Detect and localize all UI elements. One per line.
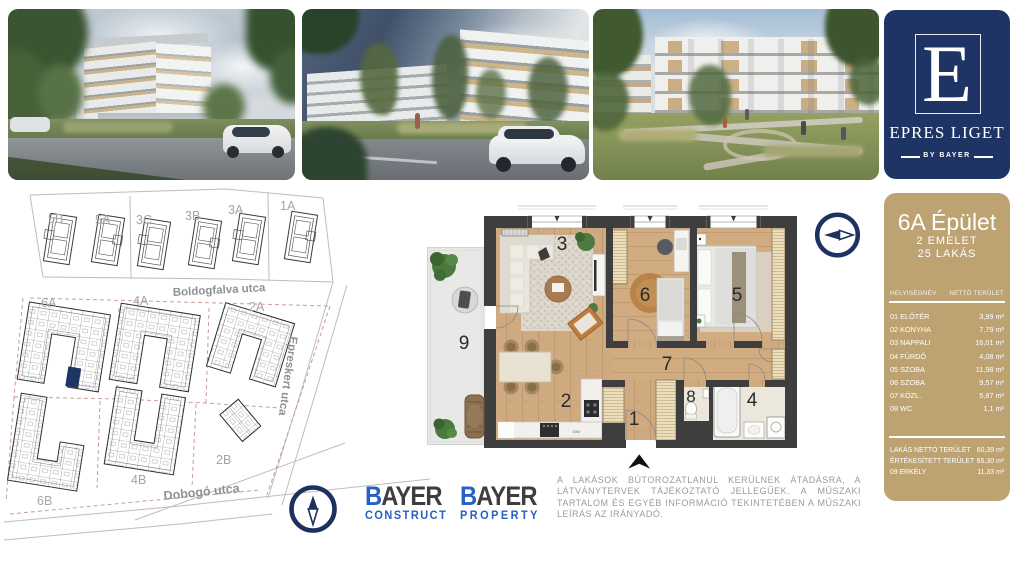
svg-text:3A: 3A xyxy=(228,203,244,217)
svg-text:2: 2 xyxy=(561,391,572,412)
svg-text:3C: 3C xyxy=(136,213,152,227)
svg-text:6A: 6A xyxy=(41,296,57,310)
svg-text:8: 8 xyxy=(686,387,695,406)
svg-text:Boldogfalva utca: Boldogfalva utca xyxy=(173,282,267,299)
svg-text:7: 7 xyxy=(662,354,673,375)
svg-text:3: 3 xyxy=(557,234,568,255)
svg-text:4A: 4A xyxy=(133,294,149,308)
svg-text:6B: 6B xyxy=(37,494,52,508)
svg-text:3B: 3B xyxy=(185,209,200,223)
svg-text:1: 1 xyxy=(629,409,640,430)
svg-text:DW: DW xyxy=(573,429,580,434)
svg-text:9: 9 xyxy=(459,333,470,354)
svg-text:5: 5 xyxy=(732,285,743,306)
svg-text:6: 6 xyxy=(640,285,651,306)
svg-text:1A: 1A xyxy=(280,199,296,213)
svg-text:2B: 2B xyxy=(216,453,231,467)
svg-text:4: 4 xyxy=(747,390,758,411)
svg-text:2A: 2A xyxy=(249,300,265,314)
svg-text:5B: 5B xyxy=(48,212,63,226)
svg-text:Dobogó utca: Dobogó utca xyxy=(163,481,241,503)
svg-text:5A: 5A xyxy=(95,213,111,227)
svg-text:4B: 4B xyxy=(131,473,146,487)
